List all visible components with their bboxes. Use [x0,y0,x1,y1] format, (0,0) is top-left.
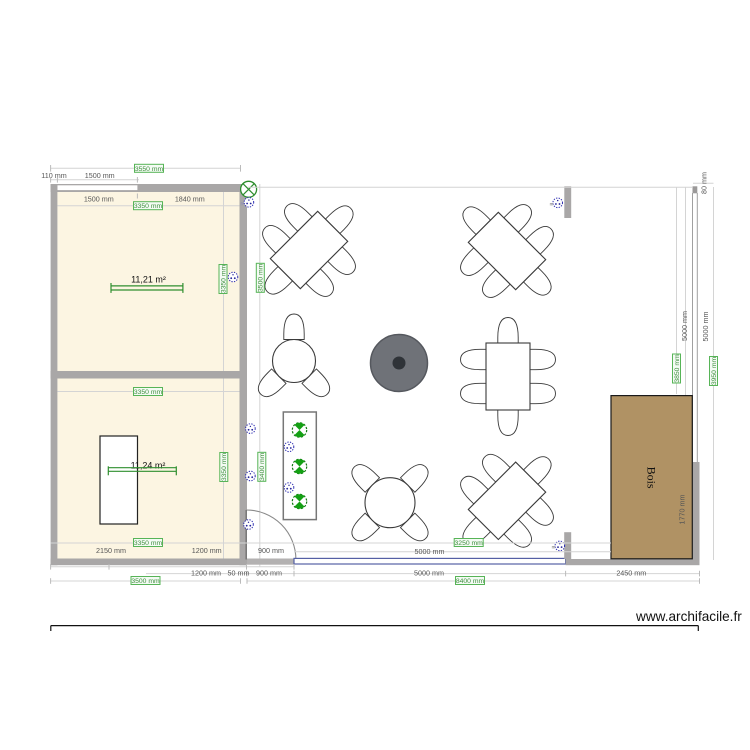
svg-text:3350 mm: 3350 mm [134,540,163,547]
svg-text:m: m [552,545,556,550]
svg-text:3500 mm: 3500 mm [131,578,160,585]
svg-text:3250 mm: 3250 mm [455,540,484,547]
svg-text:3350 mm: 3350 mm [134,389,163,396]
svg-text:5000 mm: 5000 mm [414,569,444,578]
svg-text:1500 mm: 1500 mm [84,194,114,203]
svg-text:Bois: Bois [645,467,659,489]
svg-text:900 mm: 900 mm [256,568,282,577]
svg-text:m: m [550,202,554,207]
svg-text:3350 mm: 3350 mm [220,265,227,294]
svg-text:1500 mm: 1500 mm [85,171,115,180]
svg-text:3350 mm: 3350 mm [221,453,228,482]
svg-text:3400 mm: 3400 mm [259,452,266,481]
svg-text:3950 mm: 3950 mm [711,357,718,386]
svg-text:1840 mm: 1840 mm [175,194,205,203]
svg-text:11,24 m²: 11,24 m² [131,461,166,471]
svg-text:R: R [240,202,243,207]
svg-text:50 mm: 50 mm [228,568,250,577]
svg-text:8400 mm: 8400 mm [456,578,485,585]
svg-text:3550 mm: 3550 mm [135,166,164,173]
svg-text:110 mm: 110 mm [41,171,66,180]
svg-text:11,21 m²: 11,21 m² [131,274,166,284]
svg-text:3350 mm: 3350 mm [134,203,163,210]
svg-text:3500 mm: 3500 mm [258,263,265,292]
svg-text:1200 mm: 1200 mm [191,568,221,577]
svg-text:1200 mm: 1200 mm [192,546,222,555]
svg-text:www.archifacile.fr: www.archifacile.fr [635,609,742,624]
svg-text:3850 mm: 3850 mm [674,354,681,383]
svg-text:5000 mm: 5000 mm [415,547,445,556]
svg-text:900 mm: 900 mm [258,546,284,555]
svg-text:2450 mm: 2450 mm [616,569,646,578]
svg-text:2150 mm: 2150 mm [96,546,126,555]
svg-text:5000 mm: 5000 mm [680,311,689,341]
svg-text:1770 mm: 1770 mm [678,495,687,525]
svg-text:80 mm: 80 mm [700,172,709,194]
svg-text:5000 mm: 5000 mm [701,312,710,342]
